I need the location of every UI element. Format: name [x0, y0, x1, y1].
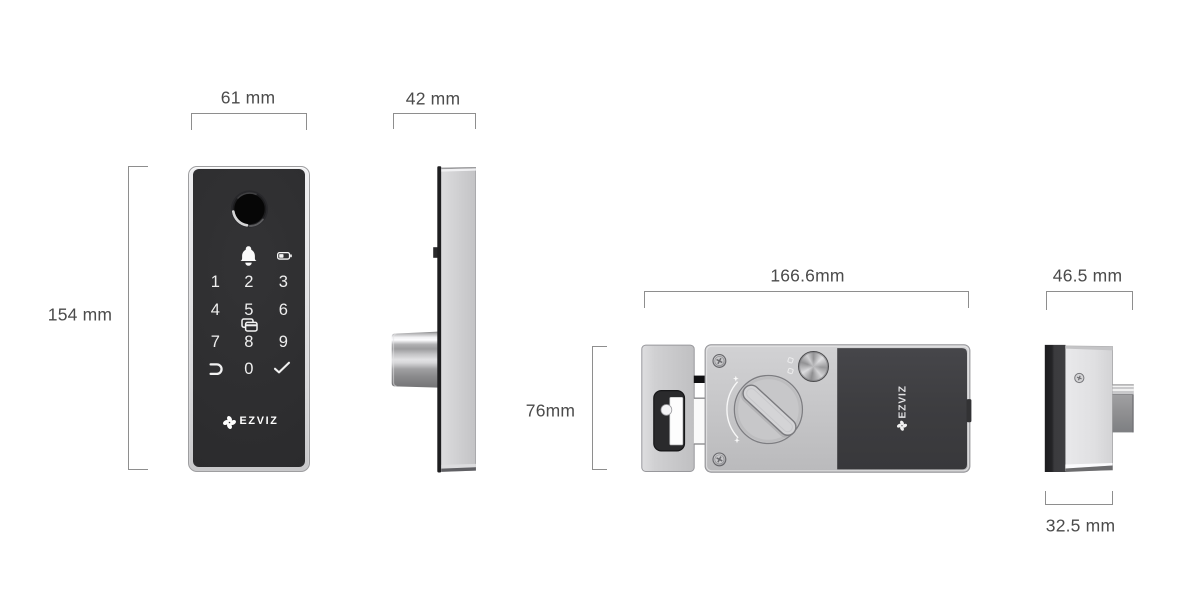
svg-text:EZVIZ: EZVIZ — [897, 385, 908, 418]
